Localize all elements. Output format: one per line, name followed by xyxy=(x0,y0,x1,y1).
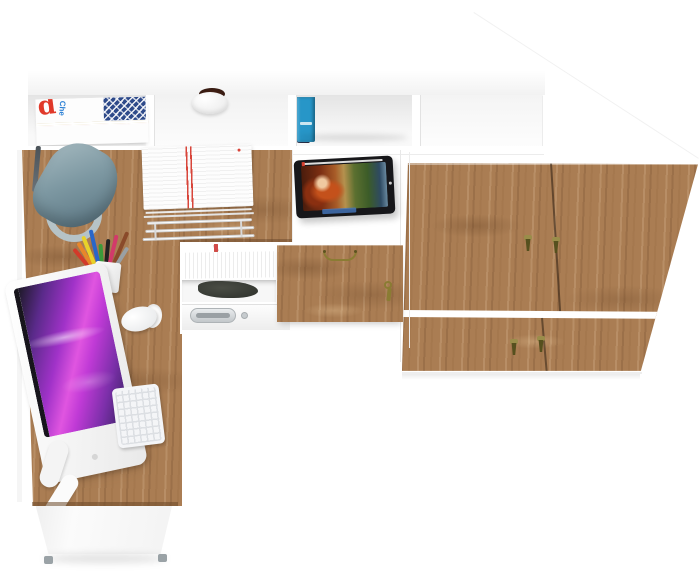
book-label xyxy=(300,122,313,125)
wardrobe-handle xyxy=(552,237,560,253)
flap-door-handle xyxy=(323,251,357,261)
shelf-divider xyxy=(288,95,296,148)
tray-wire xyxy=(147,218,252,225)
file-tab xyxy=(214,244,218,252)
video-progress-marker xyxy=(302,162,305,166)
drawer-lock-knob xyxy=(241,312,248,319)
open-compartment xyxy=(182,280,276,302)
tray-leg xyxy=(240,221,243,237)
tablet-screen xyxy=(301,162,388,211)
books-shadow xyxy=(298,134,408,141)
cabinet-gap-line xyxy=(409,152,410,348)
magazine-word: Che xyxy=(57,101,67,117)
desk-floor-shadow xyxy=(44,554,166,563)
handle-screw xyxy=(354,250,357,253)
document-red-mark xyxy=(238,149,241,152)
tablet xyxy=(294,155,396,218)
wardrobe-handle xyxy=(524,235,532,251)
product-photo-stage: d Che xyxy=(0,0,700,574)
stored-dark-object xyxy=(198,281,258,298)
stored-papers xyxy=(182,251,278,279)
paper-tray xyxy=(139,142,258,242)
plant-pot xyxy=(192,92,228,114)
tray-documents xyxy=(141,144,253,210)
desk-front-edge xyxy=(32,502,178,506)
video-caption-bar xyxy=(322,207,356,214)
magazine-stack: d Che xyxy=(35,97,148,146)
books-row xyxy=(297,97,413,149)
magazine-pattern-block xyxy=(103,97,146,121)
desk-foot xyxy=(44,556,53,564)
wardrobe-doors xyxy=(402,163,698,373)
wardrobe-handle xyxy=(537,336,545,352)
shelf-top-shading xyxy=(28,70,545,95)
camera-dot-icon xyxy=(389,182,392,185)
desk-foot xyxy=(158,554,167,562)
flap-door xyxy=(277,245,403,322)
wardrobe-shadow xyxy=(402,374,640,380)
shelf-divider xyxy=(412,95,420,148)
drawer-aluminum-handle xyxy=(190,308,236,323)
wardrobe-split-gap xyxy=(402,310,698,319)
tray-wire xyxy=(145,226,254,233)
magazine-letter: d xyxy=(36,97,57,121)
magazine-stripes xyxy=(36,121,149,146)
wardrobe-handle xyxy=(510,339,518,355)
tray-leg xyxy=(154,224,157,240)
desk-front-panel xyxy=(30,506,172,554)
magazine-cover: d Che xyxy=(35,97,148,124)
handle-screw xyxy=(323,250,326,253)
cubby-right-panel xyxy=(413,95,543,148)
monitor-logo-icon xyxy=(91,453,98,460)
keyboard xyxy=(112,383,166,448)
key-icon xyxy=(386,288,391,301)
